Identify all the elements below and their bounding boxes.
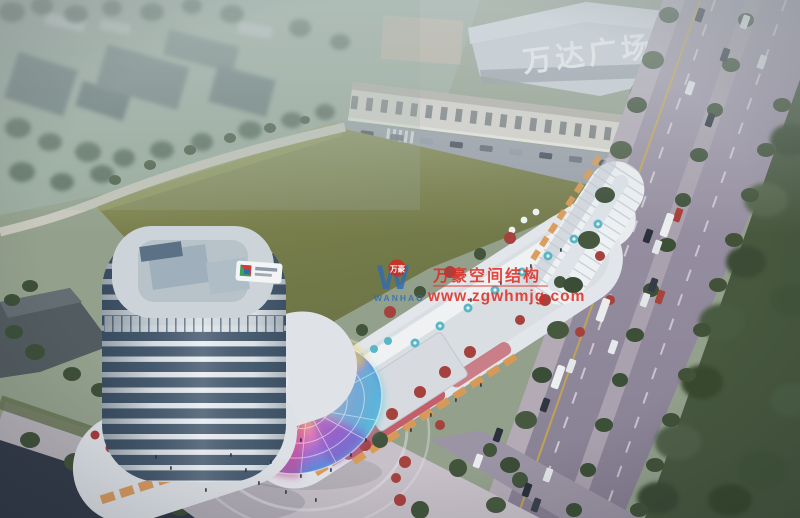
rendering-canvas: 万达广场 <box>0 0 800 518</box>
watermark-logo-caption: WANHAO <box>374 293 425 303</box>
watermark-badge-text: 万豪 <box>389 264 405 274</box>
watermark-brand: 万豪空间结构 <box>432 266 541 285</box>
watermark-url: www.zgwhmjg.com <box>427 288 585 305</box>
architectural-rendering: 万达广场 <box>0 0 800 518</box>
